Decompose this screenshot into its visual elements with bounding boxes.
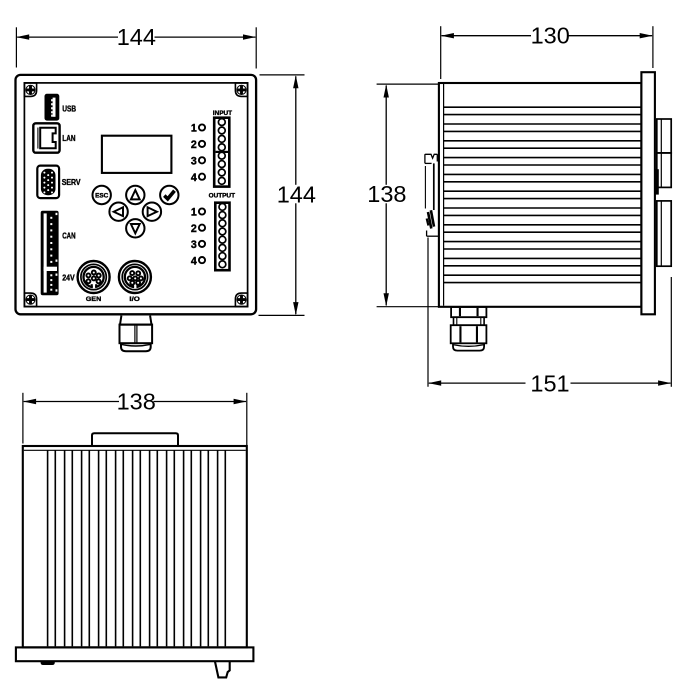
svg-text:151: 151 — [530, 370, 569, 396]
svg-text:4: 4 — [191, 172, 197, 184]
svg-text:3: 3 — [191, 239, 197, 251]
svg-text:130: 130 — [531, 23, 570, 49]
svg-text:LAN: LAN — [62, 134, 75, 143]
svg-text:24V: 24V — [62, 274, 75, 283]
svg-text:I/O: I/O — [129, 296, 140, 303]
svg-text:ESC: ESC — [95, 192, 108, 199]
svg-text:INPUT: INPUT — [213, 110, 232, 117]
svg-text:1: 1 — [191, 123, 197, 135]
svg-text:GEN: GEN — [86, 296, 102, 303]
svg-text:2: 2 — [191, 139, 197, 151]
svg-text:1: 1 — [191, 207, 197, 219]
svg-text:2: 2 — [191, 223, 197, 235]
svg-text:USB: USB — [62, 105, 76, 114]
svg-text:3: 3 — [191, 156, 197, 168]
svg-text:OUTPUT: OUTPUT — [209, 192, 236, 199]
svg-text:SERV: SERV — [62, 178, 81, 187]
svg-text:144: 144 — [117, 24, 156, 50]
svg-text:138: 138 — [117, 389, 156, 415]
svg-text:4: 4 — [191, 255, 197, 267]
svg-text:138: 138 — [367, 181, 406, 207]
svg-text:CAN: CAN — [62, 231, 75, 240]
svg-text:144: 144 — [277, 182, 316, 208]
